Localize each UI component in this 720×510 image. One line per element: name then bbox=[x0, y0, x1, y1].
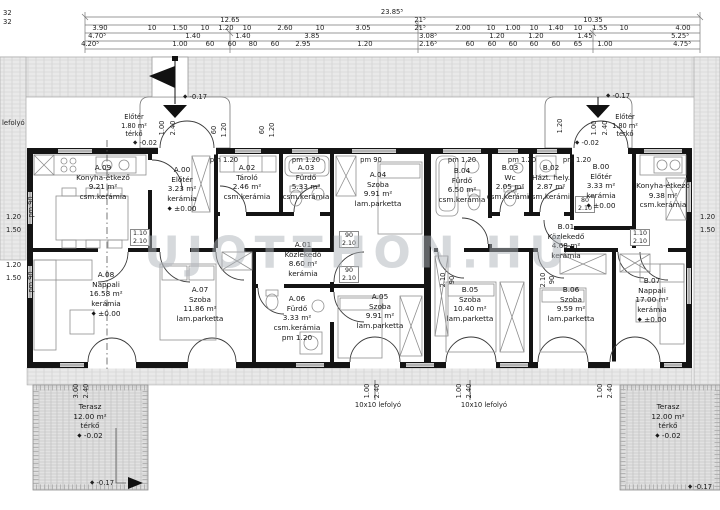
dim: 4.20⁵ bbox=[81, 40, 99, 48]
room-label-b04: B.04Fürdő 6.50 m²csm.kerámia bbox=[439, 166, 486, 205]
dim: 2.40 bbox=[601, 121, 609, 136]
floorplan-page: UJOTTHON.HU 32 32 23.85⁵ 12.65 21⁵ 10.35… bbox=[0, 0, 720, 510]
room-label-a05: A.05Szoba 9.91 m²lam.parketta bbox=[357, 292, 404, 331]
dim: 10 bbox=[148, 24, 157, 32]
level-marker-icon: ◆ bbox=[606, 93, 610, 99]
dim: 1.00 bbox=[363, 384, 371, 399]
dim: 3.05 bbox=[355, 24, 370, 32]
street-level-bottom-left: ◆ -0.17 bbox=[90, 479, 114, 487]
drain-note: 10x10 lefolyó bbox=[355, 401, 401, 409]
street-level-right: ◆ -0.17 bbox=[606, 92, 630, 100]
dim: 1.00 bbox=[597, 40, 612, 48]
room-label-a08: A.08Nappali 16.58 m²kerámia ◆ ±0.00 bbox=[89, 270, 122, 318]
level-marker-icon: ◆ bbox=[655, 433, 659, 439]
dim: 60 bbox=[552, 40, 561, 48]
level-marker-icon: ◆ bbox=[575, 140, 579, 146]
dim: 2.40 bbox=[373, 384, 381, 399]
dim: 60 bbox=[228, 40, 237, 48]
level-marker-icon: ◆ bbox=[167, 206, 171, 212]
room-label-a09: A.09Konyha-étkező 9.21 m²csm.kerámia bbox=[76, 163, 130, 202]
dim: 1.50 bbox=[6, 226, 21, 234]
dim: 1.20 bbox=[6, 261, 21, 269]
dim: 10 bbox=[243, 24, 252, 32]
dim: 1.00 bbox=[172, 40, 187, 48]
parapet-note: pm 90 bbox=[360, 156, 382, 164]
dim: 4.70⁵ bbox=[88, 32, 106, 40]
dim: 3.00 bbox=[72, 384, 80, 399]
dim: 3.90 bbox=[92, 24, 107, 32]
dim: 2.40 bbox=[606, 384, 614, 399]
terrace-label-left: Terasz12.00 m² térkő ◆ -0.02 bbox=[73, 402, 106, 441]
level-marker-icon: ◆ bbox=[586, 203, 590, 209]
street-level-left: ◆ -0.17 bbox=[183, 93, 207, 101]
dim: 10 bbox=[530, 24, 539, 32]
entry-label-left: Előtér1.80 m² térkő bbox=[121, 113, 147, 139]
dim: 60 bbox=[530, 40, 539, 48]
dim: 2.40 bbox=[465, 384, 473, 399]
dim: 5.25⁵ bbox=[671, 32, 689, 40]
dim: 4.00 bbox=[675, 24, 690, 32]
room-label-b07: B.07Nappali 17.00 m²kerámia ◆ ±0.00 bbox=[635, 276, 668, 324]
dim: 12.65 bbox=[220, 16, 239, 24]
dim: 1.20 bbox=[220, 123, 228, 138]
room-label-a04: A.04Szoba 9.91 m²lam.parketta bbox=[355, 170, 402, 209]
dim: 80 bbox=[249, 40, 258, 48]
dim: 60 bbox=[488, 40, 497, 48]
dim: 10 bbox=[487, 24, 496, 32]
dim: 1.20 bbox=[218, 24, 233, 32]
dim: 10 bbox=[316, 24, 325, 32]
dim: 1.50 bbox=[700, 226, 715, 234]
dim: 1.50 bbox=[6, 274, 21, 282]
drain-note: 10x10 lefolyó bbox=[461, 401, 507, 409]
dim: 1.55 bbox=[592, 24, 607, 32]
dim: 1.20 bbox=[556, 119, 564, 134]
room-label-b-kitchen: Konyha-étkező9.38 m² csm.kerámia bbox=[636, 181, 690, 210]
level-marker-icon: ◆ bbox=[133, 140, 137, 146]
dim: 60 bbox=[210, 126, 218, 134]
dim: 1.00 bbox=[505, 24, 520, 32]
dim: 1.40 bbox=[235, 32, 250, 40]
dim: 60 bbox=[466, 40, 475, 48]
room-label-b03: B.03Wc 2.05 m²csm.kerámia bbox=[487, 163, 534, 202]
level-marker-icon: ◆ bbox=[183, 94, 187, 100]
room-label-a00: A.00Előtér 3.23 m²kerámia ◆ ±0.00 bbox=[167, 165, 197, 213]
parapet-note: pm 90 bbox=[27, 271, 35, 292]
dim: 1.20 bbox=[700, 213, 715, 221]
dim: 1.20 bbox=[268, 123, 276, 138]
dim: 4.75⁵ bbox=[673, 40, 691, 48]
dim: 1.00 bbox=[158, 121, 166, 136]
level-marker-icon: ◆ bbox=[77, 433, 81, 439]
dim: 10 bbox=[574, 24, 583, 32]
terrace-label-right: Terasz12.00 m² térkő ◆ -0.02 bbox=[651, 402, 684, 441]
dim: 2.95 bbox=[295, 40, 310, 48]
room-label-b05: B.05Szoba 10.40 m²lam.parketta bbox=[447, 285, 494, 324]
dim: 1.00 bbox=[590, 121, 598, 136]
wall-thickness: 32 bbox=[3, 18, 12, 26]
level-marker-icon: ◆ bbox=[688, 484, 692, 490]
dim: 2.16⁵ bbox=[419, 40, 437, 48]
dim: 10 bbox=[620, 24, 629, 32]
dim: 2.60 bbox=[277, 24, 292, 32]
room-label-a06: A.06Fürdő 3.33 m²csm.kerámia pm 1.20 bbox=[274, 294, 321, 342]
dim-total: 23.85⁵ bbox=[381, 8, 403, 16]
dim: 10.35 bbox=[583, 16, 602, 24]
dim: 1.20 bbox=[6, 213, 21, 221]
dim: 3.85 bbox=[304, 32, 319, 40]
dim: 60 bbox=[271, 40, 280, 48]
entry-label-right: Előtér1.80 m² térkő bbox=[612, 113, 638, 139]
room-label-a03: A.03Fürdő 5.33 m²csm.kerámia bbox=[283, 163, 330, 202]
dim: 3.08⁵ bbox=[419, 32, 437, 40]
watermark: UJOTTHON.HU bbox=[144, 228, 572, 279]
room-label-a07: A.07Szoba 11.86 m²lam.parketta bbox=[177, 285, 224, 324]
dim: 2.40 bbox=[82, 384, 90, 399]
dim: 60 bbox=[206, 40, 215, 48]
parapet-note: pm 90 bbox=[27, 196, 35, 217]
wall-thickness: 32 bbox=[3, 9, 12, 17]
dim: 21⁵ bbox=[414, 16, 425, 24]
drain-note: lefolyó bbox=[2, 119, 25, 127]
room-label-a02: A.02Tároló 2.46 m²csm.kerámia bbox=[224, 163, 271, 202]
entry-level-right: ◆ -0.02 bbox=[575, 139, 599, 147]
dim: 60 bbox=[258, 126, 266, 134]
room-label-b02: B.02Házt. hely. 2.87 m²csm.kerámia bbox=[528, 163, 575, 202]
dim: 1.00 bbox=[596, 384, 604, 399]
dim: 1.20 bbox=[528, 32, 543, 40]
dim: 1.20 bbox=[489, 32, 504, 40]
dim: 1.00 bbox=[455, 384, 463, 399]
window-dim-pair: 1.102.10 bbox=[630, 229, 650, 246]
dim: 2.00 bbox=[455, 24, 470, 32]
dim: 10 bbox=[201, 24, 210, 32]
entry-level-left: ◆ -0.02 bbox=[133, 139, 157, 147]
room-label-b06: B.06Szoba 9.59 m²lam.parketta bbox=[548, 285, 595, 324]
dim: 65 bbox=[574, 40, 583, 48]
level-marker-icon: ◆ bbox=[91, 311, 95, 317]
dim: 1.45 bbox=[577, 32, 592, 40]
dim: 1.20 bbox=[357, 40, 372, 48]
dim: 1.40 bbox=[185, 32, 200, 40]
level-marker-icon: ◆ bbox=[637, 317, 641, 323]
dim: 60 bbox=[509, 40, 518, 48]
parapet-note: pm 1.20 bbox=[448, 156, 476, 164]
level-marker-icon: ◆ bbox=[90, 480, 94, 486]
dim: 1.50 bbox=[172, 24, 187, 32]
dim: 2.40 bbox=[169, 121, 177, 136]
street-level-bottom-right: ◆ -0.17 bbox=[688, 483, 712, 491]
dim: 1.40 bbox=[548, 24, 563, 32]
dim: 21⁵ bbox=[414, 24, 425, 32]
room-label-b00: B.00Előtér 3.33 m²kerámia ◆ ±0.00 bbox=[586, 162, 616, 210]
